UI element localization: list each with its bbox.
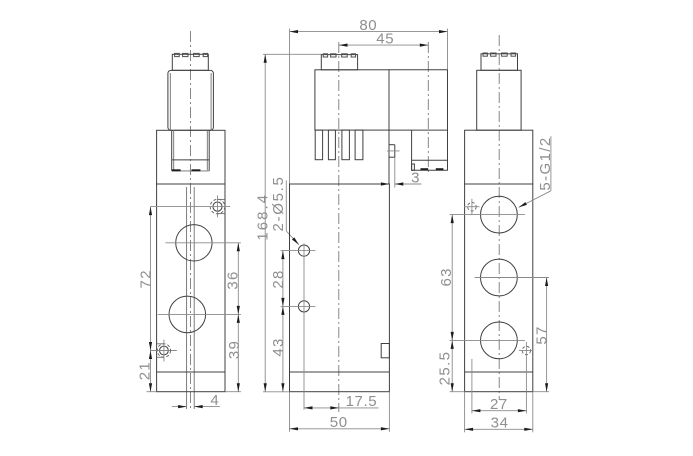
svg-text:50: 50: [330, 414, 348, 431]
svg-text:3: 3: [411, 170, 420, 187]
svg-text:36: 36: [224, 270, 241, 289]
svg-text:25.5: 25.5: [436, 351, 453, 386]
svg-text:21: 21: [137, 361, 154, 380]
svg-text:80: 80: [359, 17, 377, 34]
svg-text:34: 34: [491, 415, 509, 432]
svg-text:168.4: 168.4: [254, 193, 271, 241]
svg-text:63: 63: [438, 267, 455, 286]
svg-text:2-Ø5.5: 2-Ø5.5: [270, 175, 287, 231]
svg-text:39: 39: [226, 340, 243, 359]
svg-text:4: 4: [210, 392, 219, 409]
svg-text:45: 45: [376, 30, 394, 47]
svg-text:72: 72: [138, 269, 155, 288]
svg-text:28: 28: [270, 269, 287, 288]
svg-text:57: 57: [533, 325, 550, 344]
svg-text:27: 27: [490, 396, 508, 413]
svg-text:43: 43: [270, 337, 287, 356]
svg-text:17.5: 17.5: [346, 393, 378, 410]
